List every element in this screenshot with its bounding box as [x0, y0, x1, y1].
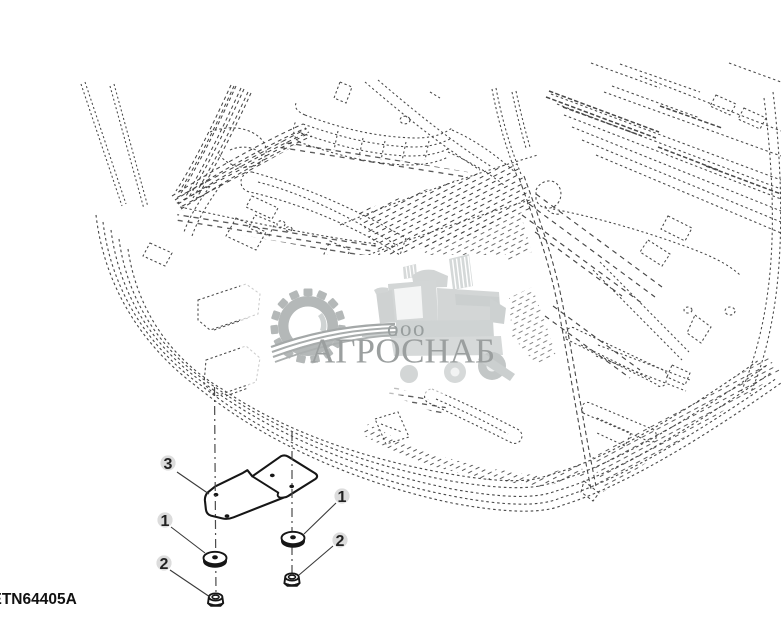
svg-text:1: 1: [161, 513, 170, 530]
svg-text:ETN64405A: ETN64405A: [0, 591, 77, 608]
svg-text:2: 2: [160, 556, 169, 573]
svg-text:1: 1: [338, 489, 347, 506]
svg-text:3: 3: [164, 456, 173, 473]
svg-text:2: 2: [336, 533, 345, 550]
svg-text:АГРОСНАБ: АГРОСНАБ: [310, 332, 495, 371]
